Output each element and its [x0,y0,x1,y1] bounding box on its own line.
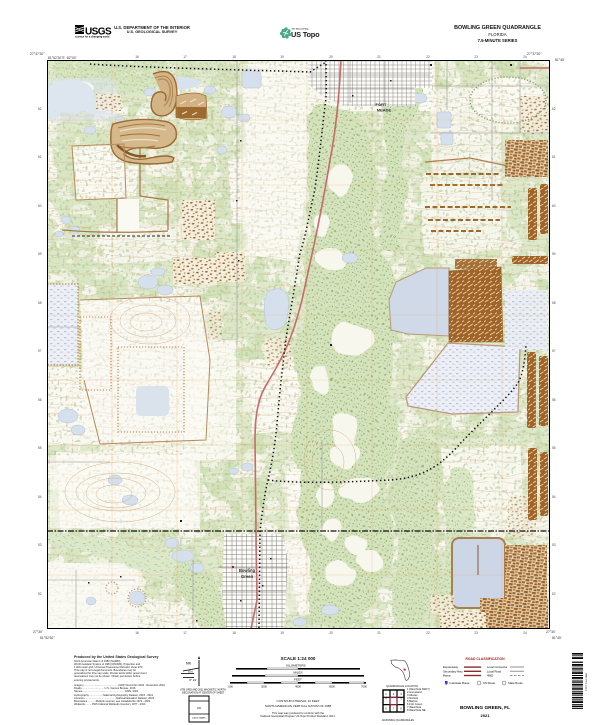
svg-text:57: 57 [552,349,556,353]
svg-text:52: 52 [38,592,42,596]
svg-text:FORT: FORT [376,102,387,107]
svg-text:59: 59 [38,252,42,256]
svg-text:GN: GN [188,670,193,674]
svg-text:MEADE: MEADE [377,108,392,113]
svg-text:DECLINATION AT CENTER OF SHEET: DECLINATION AT CENTER OF SHEET [182,692,225,695]
svg-text:State Route: State Route [508,681,523,685]
svg-text:53: 53 [38,543,42,547]
svg-text:20: 20 [329,55,333,59]
svg-text:Interstate Route: Interstate Route [450,681,470,685]
svg-text:54: 54 [38,495,42,499]
svg-text:62: 62 [552,107,556,111]
svg-text:KILOMETERS: KILOMETERS [286,664,305,668]
svg-text:61: 61 [38,155,42,159]
svg-text:GN: GN [197,706,201,710]
svg-text:22: 22 [426,631,430,635]
svg-text:19: 19 [280,631,284,635]
svg-text:4WD: 4WD [487,673,493,677]
svg-text:7000: 7000 [361,685,367,689]
svg-text:0° 21': 0° 21' [189,678,197,682]
svg-text:Bowling: Bowling [239,568,256,573]
svg-text:59: 59 [552,252,556,256]
svg-text:60: 60 [38,204,42,208]
svg-text:24: 24 [523,55,527,59]
svg-text:57: 57 [38,349,42,353]
svg-text:21: 21 [377,631,381,635]
svg-text:52: 52 [552,592,556,596]
svg-text:62: 62 [38,107,42,111]
svg-text:24: 24 [523,631,527,635]
svg-text:4000: 4000 [295,685,301,689]
svg-text:16: 16 [135,55,139,59]
svg-text:2000: 2000 [261,685,267,689]
svg-text:6000: 6000 [329,685,335,689]
svg-text:54: 54 [552,495,556,499]
svg-text:17: 17 [183,631,187,635]
svg-text:Green: Green [241,574,254,579]
svg-text:23: 23 [474,631,478,635]
svg-text:55: 55 [552,446,556,450]
svg-text:18: 18 [232,631,236,635]
svg-text:US Route: US Route [483,681,496,685]
svg-text:17: 17 [183,55,187,59]
svg-text:16: 16 [135,631,139,635]
svg-text:FEET: FEET [294,678,302,682]
svg-text:1000: 1000 [228,685,233,689]
svg-text:56: 56 [552,398,556,402]
svg-text:20: 20 [329,631,333,635]
svg-text:60: 60 [552,204,556,208]
svg-text:MILES: MILES [293,671,302,675]
svg-text:53: 53 [552,543,556,547]
svg-text:19: 19 [280,55,284,59]
svg-text:55: 55 [38,446,42,450]
svg-text:MN: MN [186,662,192,666]
svg-text:Ramp: Ramp [443,673,451,677]
svg-text:18: 18 [232,55,236,59]
svg-text:56: 56 [38,398,42,402]
svg-text:58: 58 [38,301,42,305]
svg-text:58: 58 [552,301,556,305]
svg-text:61: 61 [552,155,556,159]
svg-text:23: 23 [474,55,478,59]
svg-text:1000m MARK: 1000m MARK [192,717,206,720]
svg-text:21: 21 [377,55,381,59]
svg-text:ISBN 978-1-nnnnn: ISBN 978-1-nnnnn [585,673,587,692]
svg-text:22: 22 [426,55,430,59]
